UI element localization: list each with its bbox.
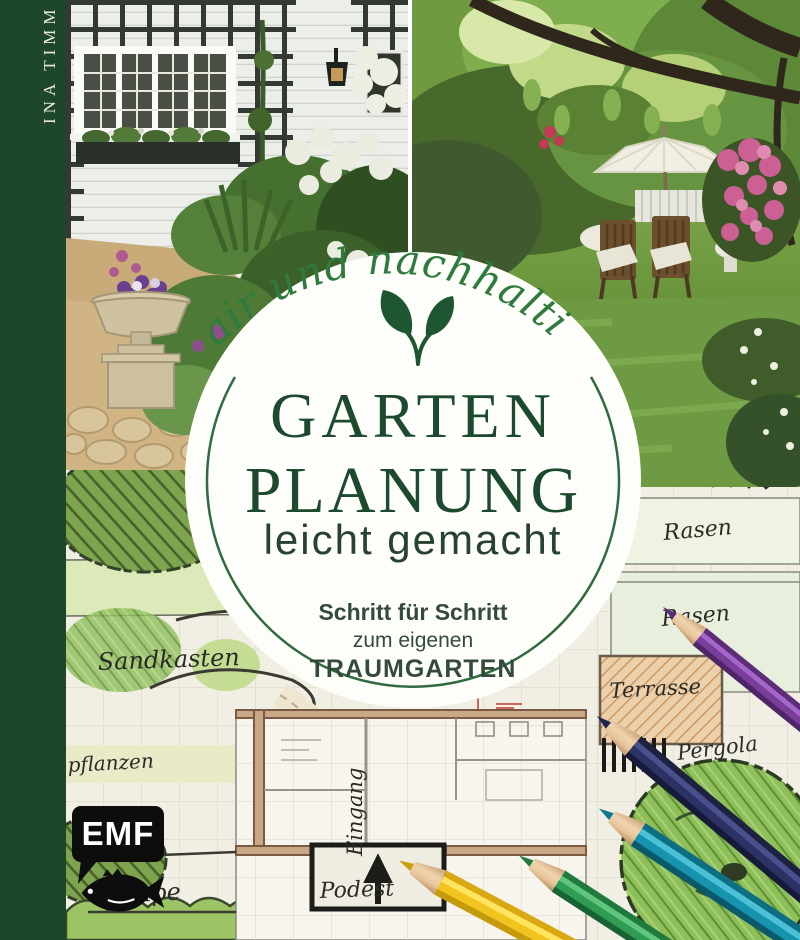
- fish-icon: [78, 868, 166, 918]
- window-flower-box: [76, 127, 240, 164]
- publisher-name: EMF: [82, 815, 155, 853]
- title-badge-content: Fair und nachhaltig! GARTEN PLANUNG leic…: [163, 230, 663, 730]
- leaf-sprig-icon: [381, 290, 454, 364]
- book-cover: Sandkasten Rasen Rasen Terrasse Pergola …: [0, 0, 800, 940]
- publisher-logo: EMF: [72, 806, 172, 922]
- book-spine: INA TIMM: [0, 0, 66, 940]
- title-line-1: GARTEN: [270, 380, 556, 451]
- claim-line-2: zum eigenen: [353, 629, 473, 652]
- title-subtitle: leicht gemacht: [264, 516, 563, 563]
- house-window: [70, 46, 240, 140]
- claim-line-3: TRAUMGARTEN: [310, 655, 517, 683]
- plan-label-podest: Podest: [318, 876, 394, 904]
- pink-rose-bush: [702, 138, 800, 262]
- plan-label-pflanzen: pflanzen: [67, 749, 154, 777]
- plan-label-eingang: Eingang: [343, 767, 367, 857]
- claim-line-1: Schritt für Schritt: [318, 599, 507, 625]
- author-name: INA TIMM: [40, 28, 64, 124]
- speech-bubble: EMF: [72, 806, 164, 862]
